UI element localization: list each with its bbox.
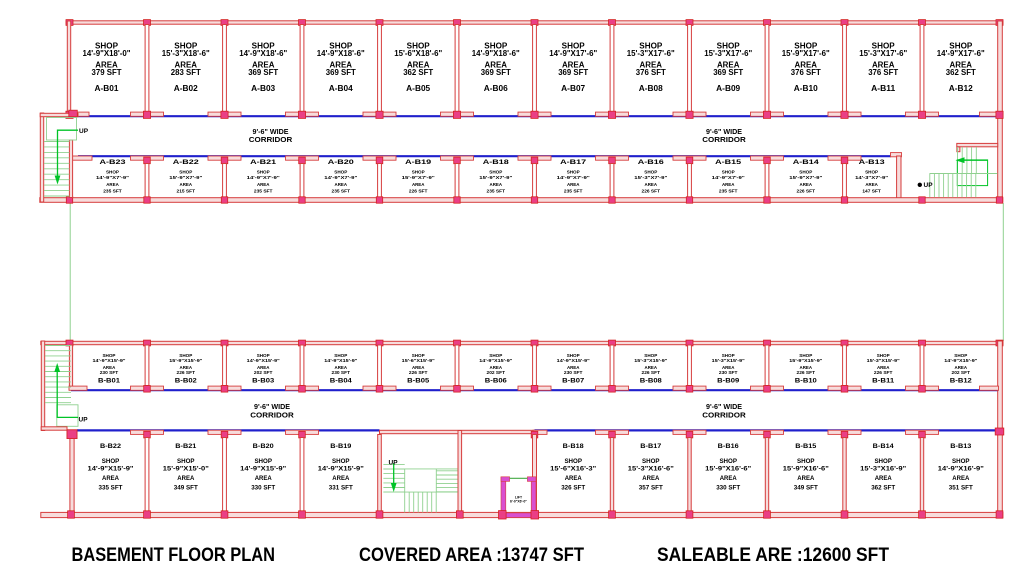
svg-text:14'-9"X16'-9": 14'-9"X16'-9" [938,465,984,472]
svg-text:BASEMENT FLOOR PLAN: BASEMENT FLOOR PLAN [72,544,276,566]
svg-text:14'-9"X17'-6": 14'-9"X17'-6" [937,49,985,58]
svg-text:AREA: AREA [255,475,272,482]
svg-text:14'-9"X7'-9": 14'-9"X7'-9" [247,175,280,181]
svg-text:15'-6"X18'-6": 15'-6"X18'-6" [394,49,442,58]
svg-text:369 SFT: 369 SFT [481,68,511,77]
svg-text:A-B11: A-B11 [871,84,896,93]
svg-text:369 SFT: 369 SFT [713,68,743,77]
svg-text:AREA: AREA [645,182,658,188]
svg-text:A-B15: A-B15 [715,159,742,166]
svg-text:AREA: AREA [877,365,890,371]
svg-text:15'-3"X15'-9": 15'-3"X15'-9" [634,358,667,364]
svg-text:SHOP: SHOP [412,170,426,176]
svg-text:A-B20: A-B20 [328,159,355,166]
svg-text:A-B03: A-B03 [251,84,276,93]
svg-text:B-B18: B-B18 [563,443,584,450]
svg-text:14'-9"X18'-0": 14'-9"X18'-0" [83,49,131,58]
svg-text:226 SFT: 226 SFT [409,370,428,376]
svg-text:15'-9"X15'-0": 15'-9"X15'-0" [163,465,209,472]
svg-text:335 SFT: 335 SFT [99,485,123,492]
svg-text:14'-9"X7'-9": 14'-9"X7'-9" [557,175,590,181]
svg-text:B-B13: B-B13 [950,443,971,450]
svg-text:15'-6"X16'-3": 15'-6"X16'-3" [550,465,596,472]
svg-text:357 SFT: 357 SFT [639,485,663,492]
svg-text:369 SFT: 369 SFT [326,68,356,77]
svg-text:B-B14: B-B14 [873,443,894,450]
svg-text:235 SFT: 235 SFT [487,188,506,194]
svg-text:SHOP: SHOP [334,170,348,176]
svg-text:B-B07: B-B07 [562,378,585,385]
svg-text:15'-3"X16'-6": 15'-3"X16'-6" [628,465,674,472]
svg-text:B-B08: B-B08 [640,378,663,385]
svg-text:B-B22: B-B22 [100,443,121,450]
svg-text:226 SFT: 226 SFT [177,370,196,376]
svg-text:AREA: AREA [722,182,735,188]
svg-text:AREA: AREA [257,182,270,188]
svg-text:14'-9"X15'-9": 14'-9"X15'-9" [240,465,286,472]
svg-text:SHOP: SHOP [874,458,892,465]
svg-text:349 SFT: 349 SFT [174,485,198,492]
svg-text:A-B13: A-B13 [859,159,886,166]
svg-text:A-B01: A-B01 [95,84,120,93]
svg-text:14'-9"X15'-9": 14'-9"X15'-9" [557,358,590,364]
svg-text:CORRIDOR: CORRIDOR [702,410,746,419]
svg-text:B-B04: B-B04 [330,378,353,385]
svg-text:B-B19: B-B19 [330,443,351,450]
svg-text:15'-3"X15'-9": 15'-3"X15'-9" [712,358,745,364]
svg-text:SHOP: SHOP [719,458,737,465]
svg-text:SHOP: SHOP [644,170,658,176]
svg-text:351 SFT: 351 SFT [949,485,973,492]
svg-text:15'-9"X7'-9": 15'-9"X7'-9" [789,175,822,181]
svg-text:362 SFT: 362 SFT [403,68,433,77]
svg-text:B-B17: B-B17 [640,443,661,450]
svg-text:B-B03: B-B03 [252,378,275,385]
svg-text:230 SFT: 230 SFT [332,370,351,376]
svg-text:AREA: AREA [952,475,969,482]
svg-text:15'-9"X15'-9": 15'-9"X15'-9" [169,358,202,364]
svg-text:AREA: AREA [567,182,580,188]
svg-text:B-B11: B-B11 [872,378,895,385]
svg-text:15'-3"X17'-6": 15'-3"X17'-6" [859,49,907,58]
svg-text:15'-3"X17'-6": 15'-3"X17'-6" [704,49,752,58]
svg-text:AREA: AREA [565,475,582,482]
svg-text:A-B17: A-B17 [560,159,587,166]
svg-text:AREA: AREA [490,182,503,188]
svg-text:B-B02: B-B02 [175,378,198,385]
svg-text:15'-9"X7'-9": 15'-9"X7'-9" [402,175,435,181]
svg-text:B-B16: B-B16 [718,443,739,450]
svg-text:330 SFT: 330 SFT [716,485,740,492]
svg-text:15'-9"X7'-9": 15'-9"X7'-9" [169,175,202,181]
svg-text:AREA: AREA [257,365,270,371]
svg-text:AREA: AREA [722,365,735,371]
svg-text:A-B16: A-B16 [638,159,665,166]
svg-text:A-B22: A-B22 [173,159,200,166]
svg-text:SALEABLE ARE :12600 SFT: SALEABLE ARE :12600 SFT [657,544,889,566]
svg-text:14'-9"X7'-9": 14'-9"X7'-9" [712,175,745,181]
svg-text:SHOP: SHOP [799,170,813,176]
svg-text:235 SFT: 235 SFT [254,188,273,194]
svg-text:235 SFT: 235 SFT [103,188,122,194]
svg-text:SHOP: SHOP [722,170,736,176]
svg-text:B-B15: B-B15 [795,443,816,450]
svg-text:A-B06: A-B06 [484,84,509,93]
svg-text:B-B10: B-B10 [795,378,818,385]
svg-text:14'-9"X15'-9": 14'-9"X15'-9" [318,465,364,472]
svg-text:A-B07: A-B07 [561,84,586,93]
svg-text:15'-3"X17'-6": 15'-3"X17'-6" [627,49,675,58]
svg-text:B-B21: B-B21 [175,443,196,450]
svg-text:379 SFT: 379 SFT [92,68,122,77]
svg-text:SHOP: SHOP [567,170,581,176]
svg-text:226 SFT: 226 SFT [874,370,893,376]
svg-text:B-B05: B-B05 [407,378,430,385]
svg-text:147 SFT: 147 SFT [862,188,881,194]
svg-text:226 SFT: 226 SFT [642,188,661,194]
svg-text:14'-9"X15'-9": 14'-9"X15'-9" [88,465,134,472]
svg-text:A-B05: A-B05 [406,84,431,93]
svg-text:AREA: AREA [955,365,968,371]
svg-text:14'-9"X15'-9": 14'-9"X15'-9" [944,358,977,364]
svg-text:230 SFT: 230 SFT [100,370,119,376]
svg-text:CORRIDOR: CORRIDOR [249,135,293,144]
svg-text:AREA: AREA [102,475,119,482]
svg-text:14'-3"X7'-9": 14'-3"X7'-9" [855,175,888,181]
svg-text:15'-9"X15'-9": 15'-9"X15'-9" [789,358,822,364]
svg-text:331 SFT: 331 SFT [329,485,353,492]
svg-text:14'-9"X7'-9": 14'-9"X7'-9" [324,175,357,181]
svg-text:B-B20: B-B20 [253,443,274,450]
svg-text:A-B18: A-B18 [483,159,510,166]
svg-text:SHOP: SHOP [102,458,120,465]
svg-text:UP: UP [389,459,399,466]
svg-text:UP: UP [79,128,89,135]
svg-text:AREA: AREA [180,365,193,371]
svg-text:SHOP: SHOP [106,170,120,176]
svg-text:14'-9"X15'-9": 14'-9"X15'-9" [324,358,357,364]
svg-text:202 SFT: 202 SFT [487,370,506,376]
svg-text:B-B06: B-B06 [485,378,508,385]
svg-text:B-B09: B-B09 [717,378,740,385]
svg-text:14'-9"X15'-9": 14'-9"X15'-9" [479,358,512,364]
svg-text:283 SFT: 283 SFT [171,68,201,77]
svg-text:14'-9"X15'-9": 14'-9"X15'-9" [93,358,126,364]
svg-text:6'-0"X6'-0": 6'-0"X6'-0" [510,500,527,504]
svg-text:AREA: AREA [335,182,348,188]
svg-text:14'-9"X18'-6": 14'-9"X18'-6" [239,49,287,58]
svg-text:376 SFT: 376 SFT [636,68,666,77]
svg-text:AREA: AREA [335,365,348,371]
svg-text:SHOP: SHOP [642,458,660,465]
svg-text:AREA: AREA [642,475,659,482]
svg-text:226 SFT: 226 SFT [797,188,816,194]
svg-text:15'-3"X16'-9": 15'-3"X16'-9" [860,465,906,472]
svg-text:AREA: AREA [567,365,580,371]
svg-text:14'-9"X18'-6": 14'-9"X18'-6" [472,49,520,58]
svg-text:226 SFT: 226 SFT [409,188,428,194]
svg-text:SHOP: SHOP [489,170,503,176]
svg-text:CORRIDOR: CORRIDOR [250,410,294,419]
svg-text:SHOP: SHOP [254,458,272,465]
svg-text:15'-6"X15'-9": 15'-6"X15'-9" [402,358,435,364]
svg-text:UP: UP [79,417,89,424]
svg-text:230 SFT: 230 SFT [719,370,738,376]
svg-text:376 SFT: 376 SFT [868,68,898,77]
svg-text:A-B08: A-B08 [639,84,664,93]
svg-text:AREA: AREA [797,475,814,482]
svg-text:15'-3"X15'-9": 15'-3"X15'-9" [867,358,900,364]
svg-text:AREA: AREA [103,365,116,371]
svg-text:15'-3"X7'-9": 15'-3"X7'-9" [634,175,667,181]
svg-text:14'-9"X15'-9": 14'-9"X15'-9" [247,358,280,364]
svg-text:A-B23: A-B23 [100,159,127,166]
svg-text:SHOP: SHOP [564,458,582,465]
svg-text:376 SFT: 376 SFT [791,68,821,77]
svg-text:AREA: AREA [490,365,503,371]
svg-text:235 SFT: 235 SFT [564,188,583,194]
svg-text:15'-9"X17'-6": 15'-9"X17'-6" [782,49,830,58]
svg-text:B-B12: B-B12 [950,378,973,385]
svg-text:A-B02: A-B02 [174,84,199,93]
svg-text:14'-9"X17'-6": 14'-9"X17'-6" [549,49,597,58]
svg-text:235 SFT: 235 SFT [719,188,738,194]
svg-text:202 SFT: 202 SFT [952,370,971,376]
svg-text:AREA: AREA [875,475,892,482]
svg-text:B-B01: B-B01 [98,378,121,385]
svg-text:326 SFT: 326 SFT [561,485,585,492]
svg-text:235 SFT: 235 SFT [332,188,351,194]
svg-text:AREA: AREA [332,475,349,482]
svg-text:AREA: AREA [865,182,878,188]
svg-text:AREA: AREA [800,182,813,188]
svg-text:SHOP: SHOP [952,458,970,465]
svg-text:14'-9"X18'-6": 14'-9"X18'-6" [317,49,365,58]
svg-text:A-B04: A-B04 [329,84,354,93]
svg-text:202 SFT: 202 SFT [254,370,273,376]
svg-text:AREA: AREA [412,365,425,371]
svg-text:215 SFT: 215 SFT [177,188,196,194]
svg-text:A-B10: A-B10 [794,84,819,93]
svg-text:AREA: AREA [180,182,193,188]
svg-text:349 SFT: 349 SFT [794,485,818,492]
svg-text:SHOP: SHOP [179,170,193,176]
svg-text:15'-9"X16'-6": 15'-9"X16'-6" [705,465,751,472]
svg-text:14'-9"X7'-9": 14'-9"X7'-9" [96,175,129,181]
svg-text:226 SFT: 226 SFT [797,370,816,376]
svg-text:15'-9"X7'-9": 15'-9"X7'-9" [479,175,512,181]
svg-text:AREA: AREA [412,182,425,188]
svg-text:230 SFT: 230 SFT [564,370,583,376]
svg-text:AREA: AREA [106,182,119,188]
svg-text:SHOP: SHOP [257,170,271,176]
svg-text:AREA: AREA [720,475,737,482]
svg-text:A-B09: A-B09 [716,84,741,93]
svg-text:A-B12: A-B12 [949,84,974,93]
svg-text:SHOP: SHOP [177,458,195,465]
svg-text:15'-3"X18'-6": 15'-3"X18'-6" [162,49,210,58]
svg-text:AREA: AREA [177,475,194,482]
svg-text:SHOP: SHOP [332,458,350,465]
svg-text:330 SFT: 330 SFT [251,485,275,492]
svg-text:15'-9"X16'-6": 15'-9"X16'-6" [783,465,829,472]
svg-text:AREA: AREA [800,365,813,371]
svg-text:UP: UP [924,182,934,189]
svg-text:A-B19: A-B19 [405,159,432,166]
svg-text:226 SFT: 226 SFT [642,370,661,376]
svg-text:SHOP: SHOP [797,458,815,465]
svg-text:SHOP: SHOP [865,170,879,176]
svg-text:362 SFT: 362 SFT [946,68,976,77]
svg-text:A-B14: A-B14 [793,159,820,166]
svg-text:369 SFT: 369 SFT [558,68,588,77]
svg-text:A-B21: A-B21 [250,159,277,166]
svg-text:CORRIDOR: CORRIDOR [702,135,746,144]
svg-text:369 SFT: 369 SFT [248,68,278,77]
svg-text:COVERED AREA :13747 SFT: COVERED AREA :13747 SFT [359,544,584,566]
svg-text:AREA: AREA [645,365,658,371]
svg-text:362 SFT: 362 SFT [871,485,895,492]
